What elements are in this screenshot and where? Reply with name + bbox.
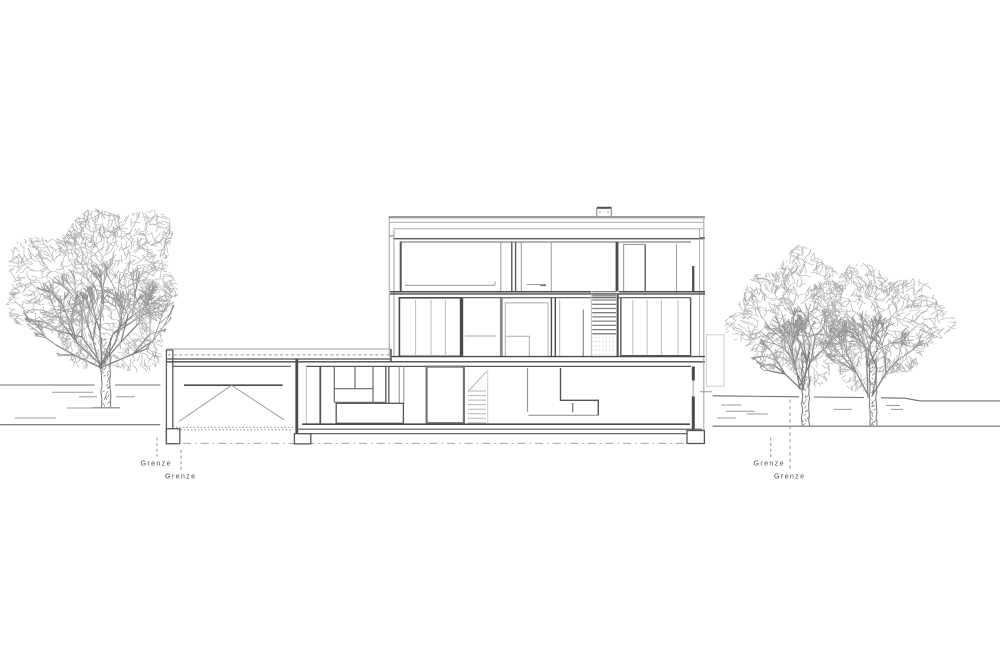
svg-text:Grenze: Grenze xyxy=(165,472,196,481)
svg-text:Grenze: Grenze xyxy=(754,459,785,468)
svg-text:Grenze: Grenze xyxy=(141,459,172,468)
svg-text:Grenze: Grenze xyxy=(774,472,805,481)
